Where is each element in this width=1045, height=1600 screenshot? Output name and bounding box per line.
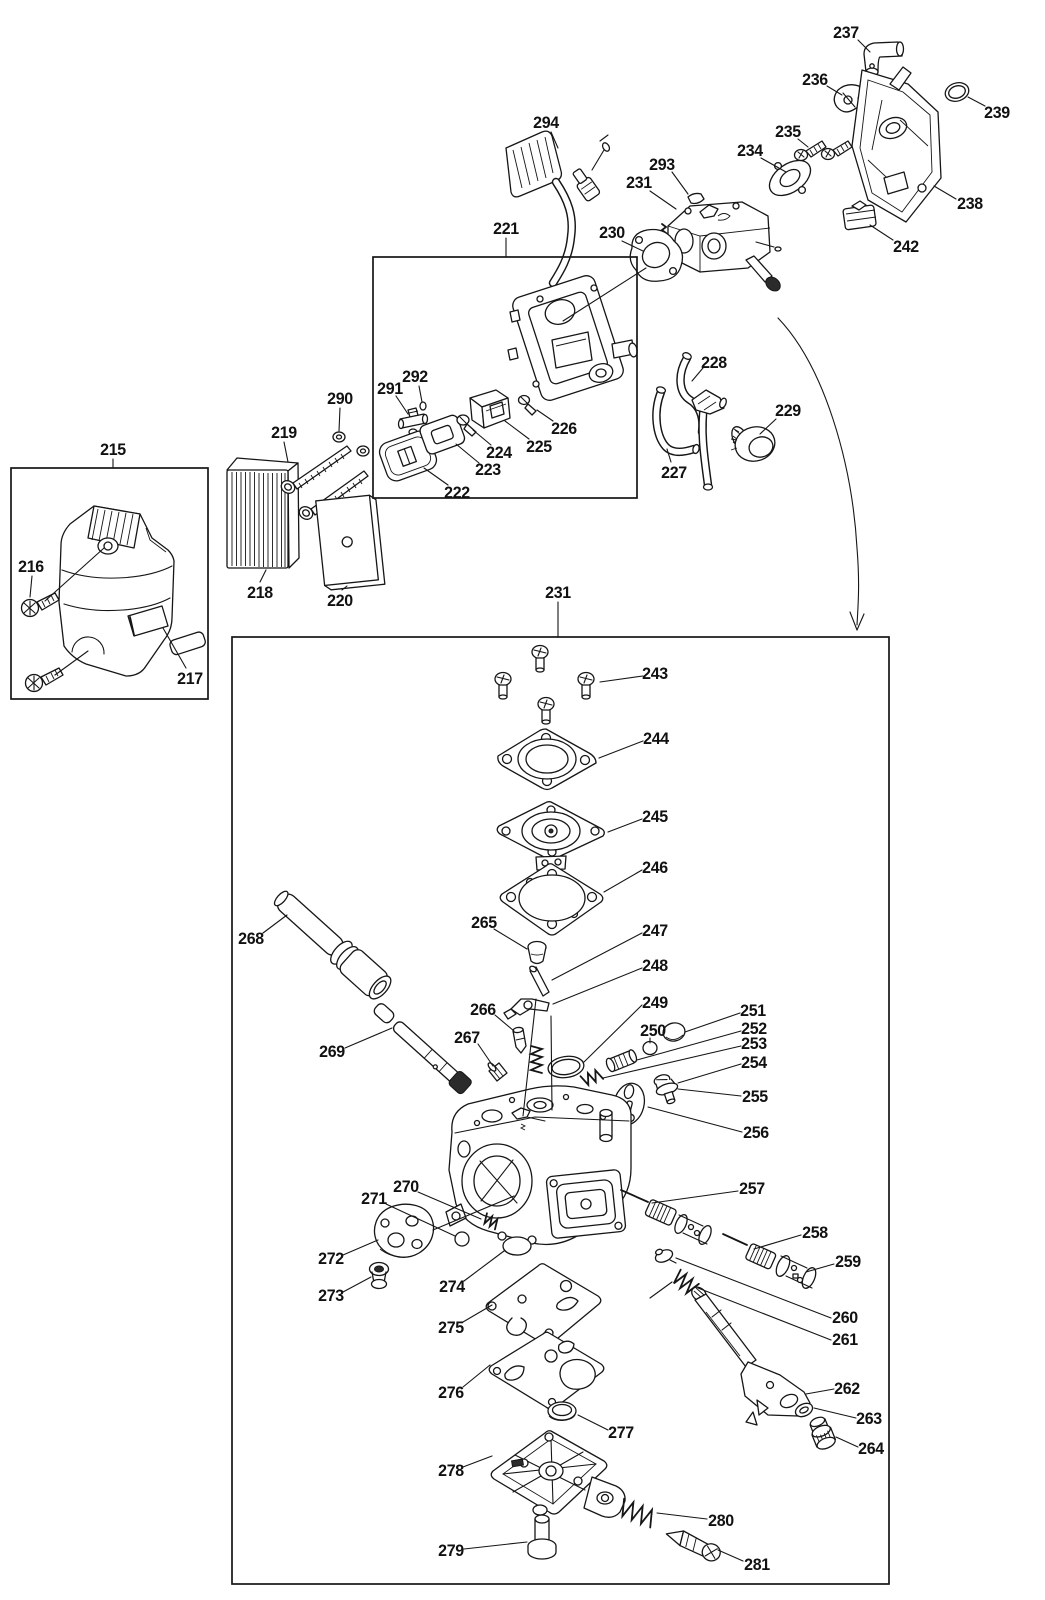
- part-label-261-43: 261: [832, 1330, 858, 1349]
- part-label-267-49: 267: [454, 1028, 480, 1047]
- leader-line-279: [464, 1542, 527, 1549]
- leader-line-251: [685, 1013, 740, 1032]
- part-clip-260: [654, 1247, 676, 1264]
- part-label-247-29: 247: [642, 921, 668, 940]
- part-label-222-7: 222: [444, 483, 470, 502]
- part-bracket-plate-238: [852, 67, 941, 222]
- leader-line-293: [672, 172, 688, 194]
- part-label-277-59: 277: [608, 1423, 634, 1442]
- part-latch-strip-217: [169, 631, 207, 656]
- part-labels-layer: 2152162172182192202212222232242252262272…: [18, 23, 1010, 1574]
- part-label-236-19: 236: [802, 70, 828, 89]
- part-gasket-234: [763, 153, 817, 202]
- part-label-272-54: 272: [318, 1249, 344, 1268]
- leader-line-273: [343, 1277, 371, 1292]
- part-air-filter-cover-215: [59, 506, 174, 676]
- part-label-225-10: 225: [526, 437, 552, 456]
- leader-line-278: [463, 1456, 492, 1467]
- part-screw-281: [663, 1527, 724, 1563]
- leader-line-258: [754, 1235, 801, 1249]
- part-label-275-57: 275: [438, 1318, 464, 1337]
- part-fuel-pickup-hose: [692, 390, 728, 490]
- leader-line-264: [836, 1437, 858, 1447]
- part-air-filter-218: [227, 458, 299, 568]
- part-label-234-17: 234: [737, 141, 764, 160]
- part-label-251-33: 251: [740, 1001, 766, 1020]
- leader-line-280: [657, 1513, 707, 1519]
- part-clip-293: [688, 193, 704, 203]
- part-label-270-52: 270: [393, 1177, 419, 1196]
- part-label-273-55: 273: [318, 1286, 344, 1305]
- flow-arrow-layer: [778, 318, 864, 630]
- part-screws-235: [795, 141, 853, 161]
- leader-line-277: [578, 1415, 608, 1430]
- leader-line-290: [339, 408, 340, 431]
- part-throttle-shaft-262: [689, 1284, 810, 1425]
- part-label-250-32: 250: [640, 1021, 666, 1040]
- part-label-221-6: 221: [493, 219, 519, 238]
- part-label-235-18: 235: [775, 122, 801, 141]
- part-label-245-27: 245: [642, 807, 668, 826]
- leader-line-263: [814, 1408, 856, 1418]
- part-plug-252: [605, 1048, 639, 1072]
- leader-line-254: [678, 1064, 741, 1083]
- part-carburetor-body: [446, 1086, 631, 1245]
- part-label-254-36: 254: [741, 1053, 768, 1072]
- part-label-269-51: 269: [319, 1042, 345, 1061]
- part-screws-216: [22, 593, 64, 692]
- part-label-263-45: 263: [856, 1409, 882, 1428]
- leader-line-218: [260, 570, 266, 582]
- part-label-219-4: 219: [271, 423, 297, 442]
- part-ring-292: [420, 402, 426, 410]
- part-label-271-53: 271: [361, 1189, 387, 1208]
- part-disc-274: [503, 1237, 531, 1255]
- part-nut-264: [807, 1414, 838, 1451]
- part-screws-243: [495, 646, 594, 725]
- leader-line-231: [650, 191, 676, 209]
- part-needle-258: [723, 1234, 777, 1270]
- part-label-229-14: 229: [775, 401, 801, 420]
- part-label-230-15: 230: [599, 223, 625, 242]
- part-screw-226: [519, 396, 537, 416]
- part-label-224-9: 224: [486, 443, 513, 462]
- leader-line-291: [396, 396, 408, 414]
- part-label-278-60: 278: [438, 1461, 464, 1480]
- part-label-281-63: 281: [744, 1555, 770, 1574]
- part-sleeve-tube-268: [268, 885, 395, 1004]
- part-pump-diaphragm-245: [497, 802, 604, 870]
- leader-line-281: [718, 1550, 743, 1561]
- leader-line-244: [599, 741, 643, 758]
- part-fuel-hose-227: [656, 386, 700, 454]
- leader-line-243: [600, 676, 643, 682]
- leader-line-292: [419, 386, 422, 402]
- part-label-242-23: 242: [893, 237, 919, 256]
- part-label-237-20: 237: [833, 23, 859, 42]
- part-label-257-39: 257: [739, 1179, 765, 1198]
- part-label-255-37: 255: [742, 1087, 768, 1106]
- part-label-243-25: 243: [642, 664, 668, 683]
- leader-line-242: [870, 225, 893, 240]
- part-button-277: [548, 1402, 576, 1421]
- leader-line-269: [345, 1028, 392, 1048]
- part-label-293-67: 293: [649, 155, 675, 174]
- leader-line-216: [30, 576, 32, 597]
- part-grommet-273: [370, 1263, 389, 1289]
- part-label-228-13: 228: [701, 353, 727, 372]
- part-label-264-46: 264: [858, 1439, 885, 1458]
- part-label-266-48: 266: [470, 1000, 496, 1019]
- leader-line-272: [343, 1240, 378, 1255]
- part-label-276-58: 276: [438, 1383, 464, 1402]
- part-label-226-11: 226: [551, 419, 577, 438]
- leader-line-238: [934, 186, 956, 199]
- leader-line-268: [263, 915, 287, 933]
- part-label-248-30: 248: [642, 956, 668, 975]
- leader-line-255: [678, 1089, 741, 1096]
- part-bottom-cover-278: [491, 1431, 625, 1518]
- part-barrel-259: [774, 1254, 819, 1291]
- leader-line-219: [284, 442, 288, 462]
- part-label-239-22: 239: [984, 103, 1010, 122]
- part-o-ring-239: [943, 80, 971, 105]
- part-intake-bracket-221: [508, 273, 638, 402]
- part-ball-271: [455, 1232, 469, 1246]
- leader-line-262: [806, 1389, 834, 1394]
- leader-line-256: [648, 1107, 742, 1132]
- part-label-246-28: 246: [642, 858, 668, 877]
- part-label-231-24: 231: [545, 583, 571, 602]
- part-plug-279: [528, 1515, 556, 1559]
- part-label-260-42: 260: [832, 1308, 858, 1327]
- parts-diagram-page: 2152162172182192202212222232242252262272…: [0, 0, 1045, 1600]
- leader-line-245: [608, 819, 642, 832]
- part-primer-bulb-229: [729, 422, 779, 465]
- part-throttle-cable-294: [506, 131, 611, 283]
- leader-line-234: [761, 158, 786, 172]
- diagram-artwork: [22, 42, 972, 1563]
- part-label-249-31: 249: [642, 993, 668, 1012]
- part-label-223-8: 223: [475, 460, 501, 479]
- part-label-220-5: 220: [327, 591, 353, 610]
- part-welch-disc-249: [547, 1054, 586, 1080]
- part-gasket-246: [500, 864, 603, 935]
- part-pump-cover-244: [498, 729, 596, 790]
- part-label-268-50: 268: [238, 929, 264, 948]
- part-inlet-screen-265: [528, 942, 546, 964]
- part-metering-spring: [531, 1046, 542, 1073]
- part-label-262-44: 262: [834, 1379, 860, 1398]
- part-spring-280: [618, 1499, 657, 1528]
- reference-arrow-head: [850, 612, 857, 630]
- part-label-244-26: 244: [643, 729, 670, 748]
- part-label-231-16: 231: [626, 173, 652, 192]
- part-metering-lever-248: [504, 999, 549, 1019]
- leader-line-274: [464, 1251, 504, 1281]
- leader-line-267: [478, 1044, 493, 1066]
- leader-line-248: [553, 968, 642, 1004]
- reference-arrow: [778, 318, 859, 625]
- part-insulator-225: [470, 390, 510, 428]
- part-label-227-12: 227: [661, 463, 687, 482]
- part-label-292-66: 292: [402, 367, 428, 386]
- part-elbow-fitting-237: [864, 42, 904, 76]
- part-label-217-2: 217: [177, 669, 203, 688]
- part-inlet-needle-266: [513, 1027, 526, 1053]
- leader-line-265: [494, 929, 527, 949]
- part-fitting-267: [487, 1062, 507, 1081]
- part-label-279-61: 279: [438, 1541, 464, 1560]
- leader-line-275: [463, 1305, 492, 1322]
- part-label-294-68: 294: [533, 113, 560, 132]
- leader-line-276: [463, 1365, 490, 1387]
- leader-line-246: [604, 870, 642, 892]
- part-label-259-41: 259: [835, 1252, 861, 1271]
- part-choke-shaft-269: [370, 1000, 473, 1095]
- leader-line-239: [968, 97, 985, 106]
- part-label-291-65: 291: [377, 379, 403, 398]
- part-filter-pad-220: [316, 495, 385, 591]
- part-label-290-64: 290: [327, 389, 353, 408]
- part-label-218-3: 218: [247, 583, 273, 602]
- part-needle-257: [621, 1190, 714, 1246]
- part-label-256-38: 256: [743, 1123, 769, 1142]
- exploded-parts-diagram: 2152162172182192202212222232242252262272…: [0, 0, 1045, 1600]
- part-label-238-21: 238: [957, 194, 983, 213]
- part-metering-diaphragm-276: [489, 1332, 604, 1409]
- part-label-216-1: 216: [18, 557, 44, 576]
- part-spring-253: [580, 1069, 603, 1087]
- part-label-274-56: 274: [439, 1277, 466, 1296]
- part-label-258-40: 258: [802, 1223, 828, 1242]
- part-pin-247: [529, 965, 549, 996]
- leader-line-257: [652, 1191, 738, 1203]
- part-label-253-35: 253: [741, 1034, 767, 1053]
- part-label-215-0: 215: [100, 440, 126, 459]
- part-label-280-62: 280: [708, 1511, 734, 1530]
- part-label-265-47: 265: [471, 913, 497, 932]
- reference-arrow-head: [857, 614, 864, 630]
